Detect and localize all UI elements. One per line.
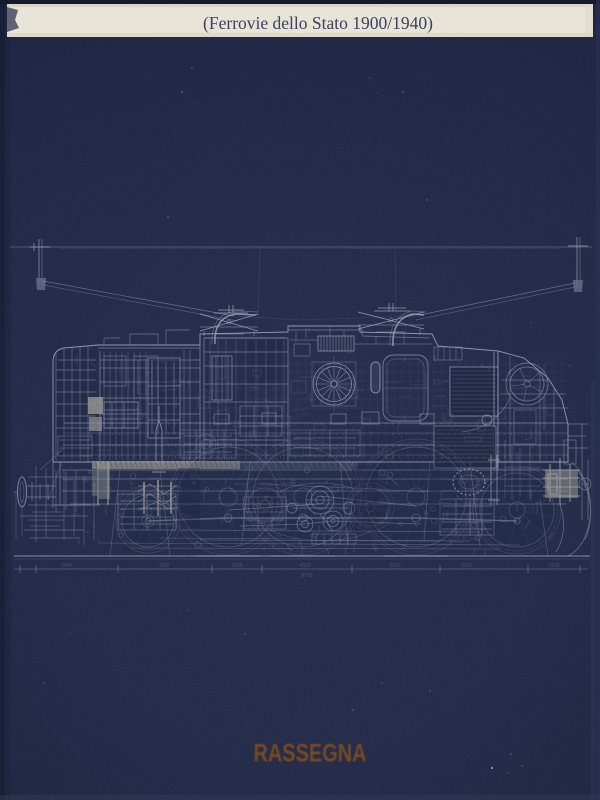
svg-text:1504: 1504 [60, 563, 71, 569]
svg-text:1150: 1150 [159, 563, 170, 569]
svg-text:1100: 1100 [549, 563, 560, 569]
svg-text:4500: 4500 [299, 563, 310, 569]
svg-text:8700: 8700 [301, 573, 312, 579]
svg-text:2300: 2300 [231, 563, 242, 569]
svg-text:RASSEGNA: RASSEGNA [254, 740, 367, 768]
svg-text:1510: 1510 [460, 563, 471, 569]
svg-text:(Ferrovie dello Stato 1900/194: (Ferrovie dello Stato 1900/1940) [203, 13, 433, 33]
svg-text:1500: 1500 [389, 563, 400, 569]
